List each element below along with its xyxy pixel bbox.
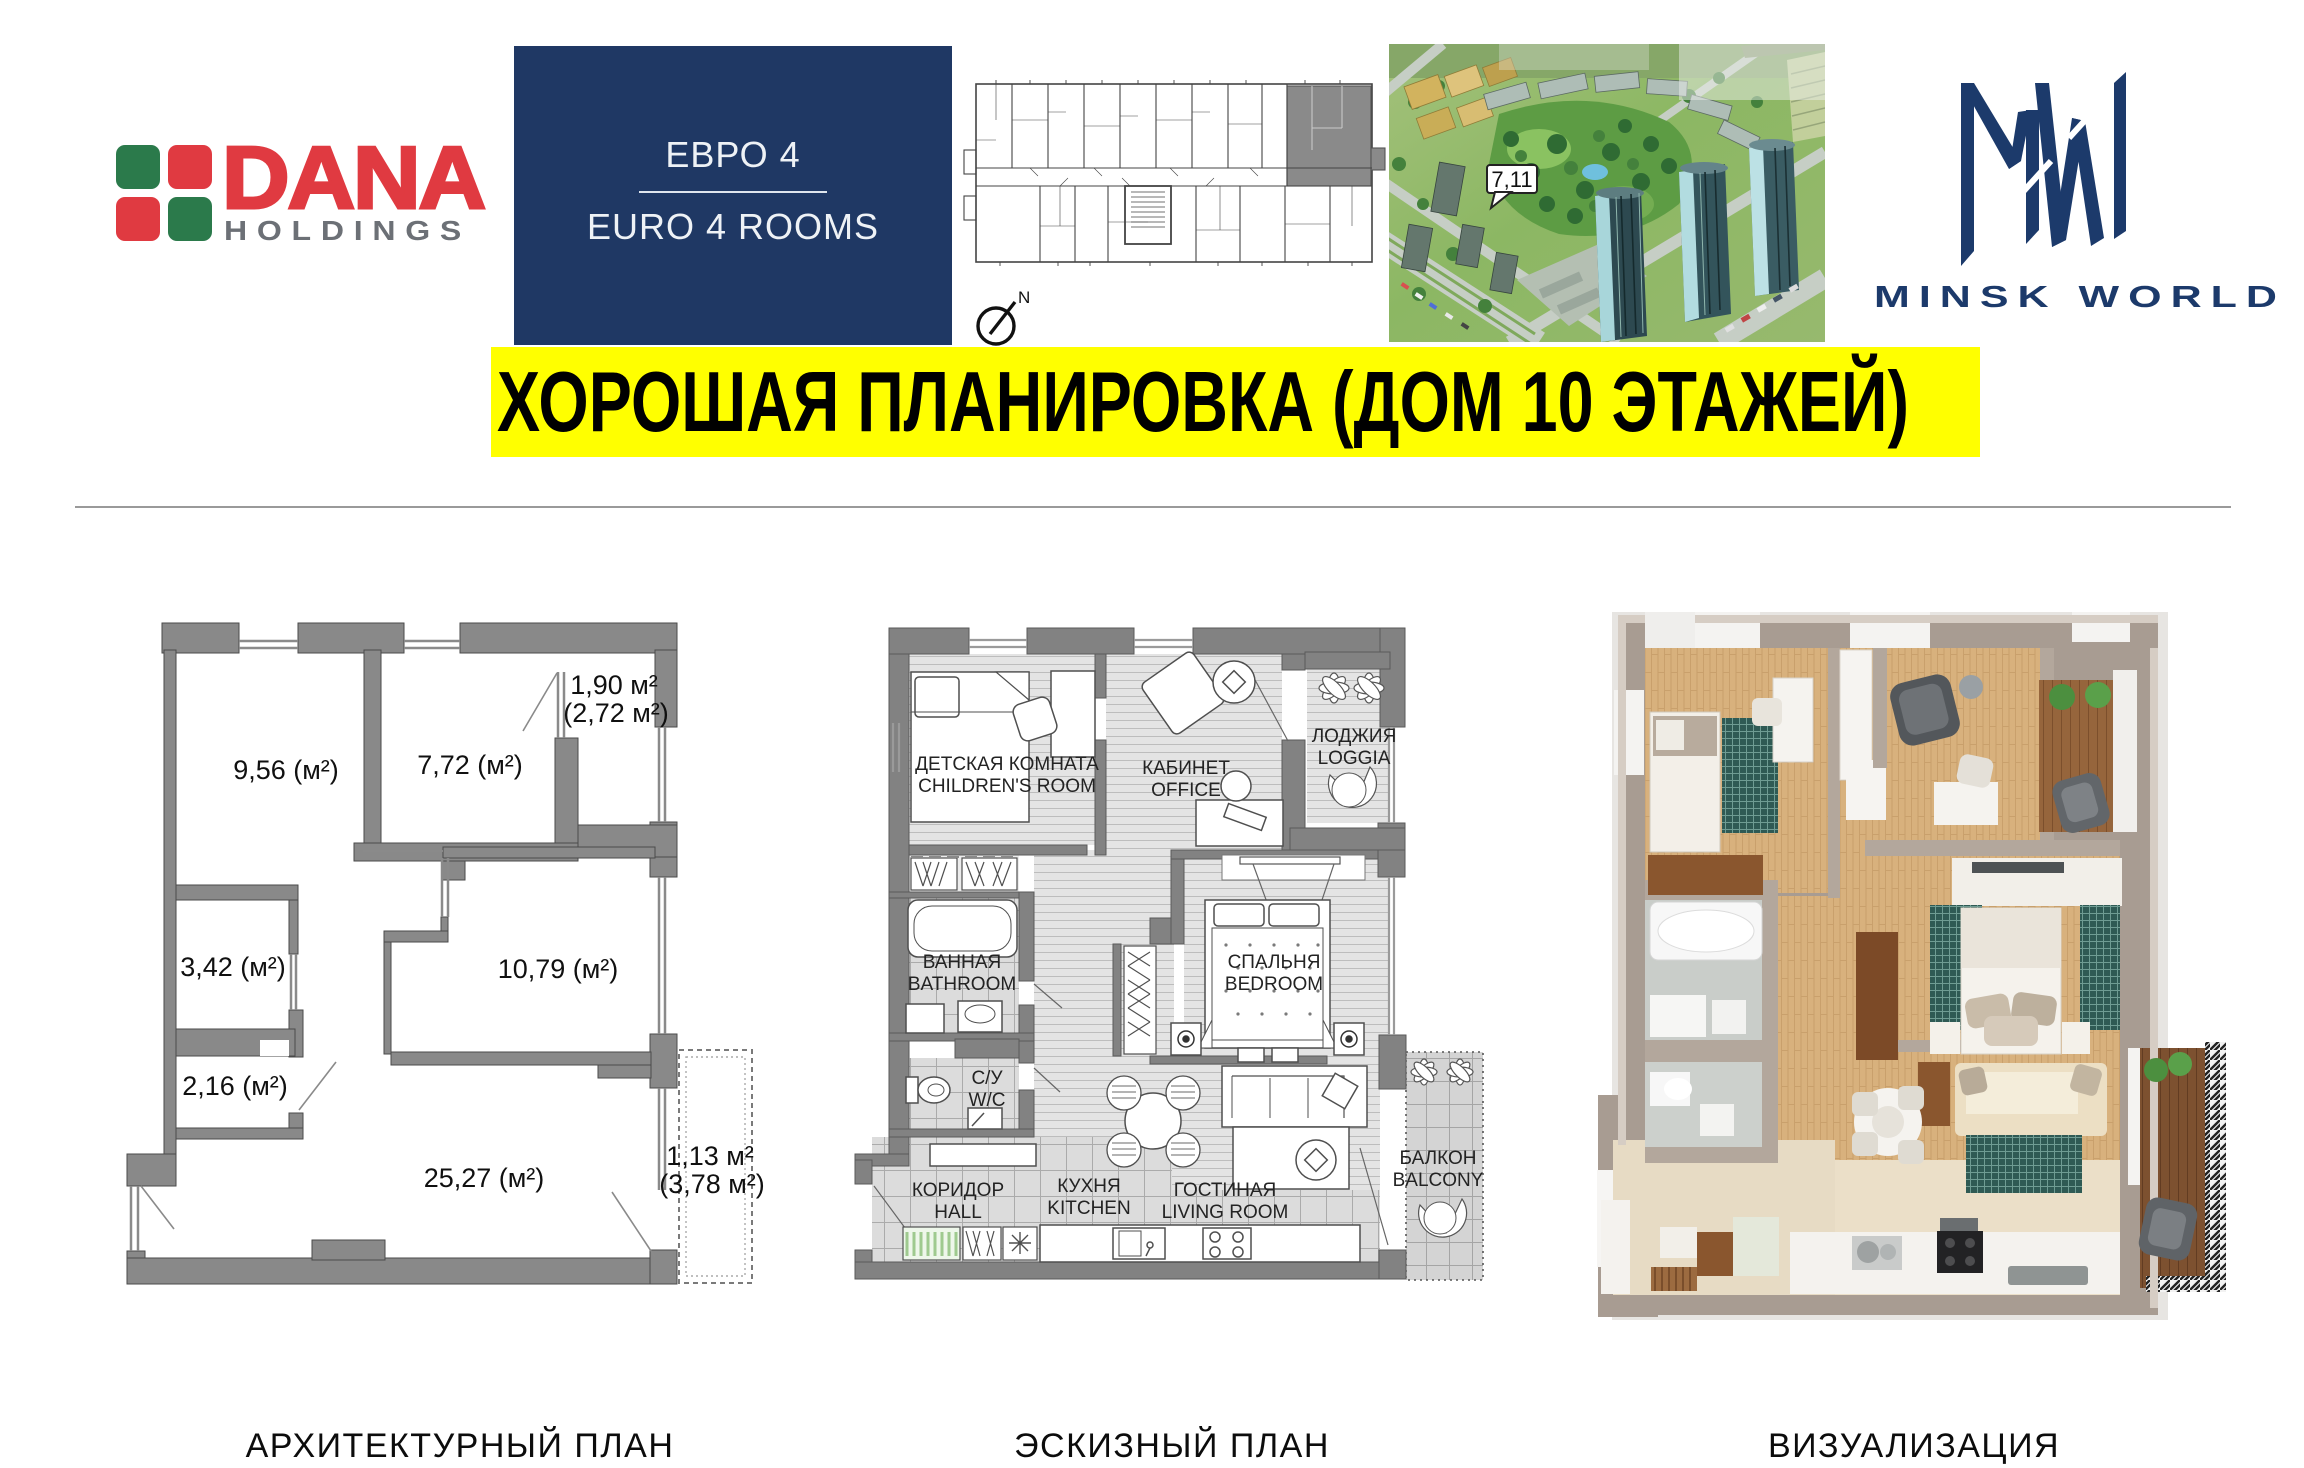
svg-text:1,90 м²: 1,90 м² bbox=[570, 670, 658, 700]
svg-text:N: N bbox=[1018, 288, 1030, 307]
svg-text:БАЛКОН: БАЛКОН bbox=[1400, 1148, 1477, 1169]
svg-text:(2,72 м²): (2,72 м²) bbox=[563, 698, 669, 728]
svg-text:С/У: С/У bbox=[971, 1068, 1003, 1089]
svg-text:10,79 (м²): 10,79 (м²) bbox=[498, 954, 619, 984]
svg-text:CHILDREN'S ROOM: CHILDREN'S ROOM bbox=[918, 776, 1096, 797]
svg-text:7,11: 7,11 bbox=[1491, 167, 1532, 192]
svg-text:HOLDINGS: HOLDINGS bbox=[224, 215, 471, 246]
svg-text:HALL: HALL bbox=[934, 1202, 982, 1223]
svg-text:ВАННАЯ: ВАННАЯ bbox=[923, 952, 1002, 973]
svg-text:ГОСТИНАЯ: ГОСТИНАЯ bbox=[1174, 1180, 1276, 1201]
svg-text:ЛОДЖИЯ: ЛОДЖИЯ bbox=[1312, 726, 1397, 747]
svg-text:3,42 (м²): 3,42 (м²) bbox=[180, 952, 286, 982]
svg-text:LOGGIA: LOGGIA bbox=[1318, 748, 1391, 769]
svg-text:(3,78 м²): (3,78 м²) bbox=[659, 1169, 765, 1199]
svg-text:KITCHEN: KITCHEN bbox=[1047, 1198, 1130, 1219]
svg-text:BEDROOM: BEDROOM bbox=[1225, 974, 1323, 995]
svg-text:ДЕТСКАЯ КОМНАТА: ДЕТСКАЯ КОМНАТА bbox=[915, 754, 1099, 775]
svg-text:СПАЛЬНЯ: СПАЛЬНЯ bbox=[1228, 952, 1321, 973]
svg-text:OFFICE: OFFICE bbox=[1151, 780, 1221, 801]
svg-text:КУХНЯ: КУХНЯ bbox=[1057, 1176, 1120, 1197]
svg-text:BATHROOM: BATHROOM bbox=[908, 974, 1016, 995]
svg-text:W/C: W/C bbox=[969, 1090, 1006, 1111]
svg-text:КАБИНЕТ: КАБИНЕТ bbox=[1142, 758, 1230, 779]
svg-text:7,72 (м²): 7,72 (м²) bbox=[417, 750, 523, 780]
svg-text:ХОРОШАЯ ПЛАНИРОВКА (ДОМ 10 ЭТА: ХОРОШАЯ ПЛАНИРОВКА (ДОМ 10 ЭТАЖЕЙ) bbox=[497, 353, 1909, 450]
svg-text:MINSK WORLD: MINSK WORLD bbox=[1874, 279, 2286, 314]
svg-text:1,13 м²: 1,13 м² bbox=[666, 1141, 754, 1171]
svg-text:2,16 (м²): 2,16 (м²) bbox=[182, 1071, 288, 1101]
svg-text:BALCONY: BALCONY bbox=[1393, 1170, 1484, 1191]
svg-text:9,56 (м²): 9,56 (м²) bbox=[233, 755, 339, 785]
svg-text:25,27 (м²): 25,27 (м²) bbox=[424, 1163, 545, 1193]
svg-text:LIVING ROOM: LIVING ROOM bbox=[1162, 1202, 1289, 1223]
svg-text:КОРИДОР: КОРИДОР bbox=[912, 1180, 1004, 1201]
svg-text:DANA: DANA bbox=[222, 128, 484, 227]
